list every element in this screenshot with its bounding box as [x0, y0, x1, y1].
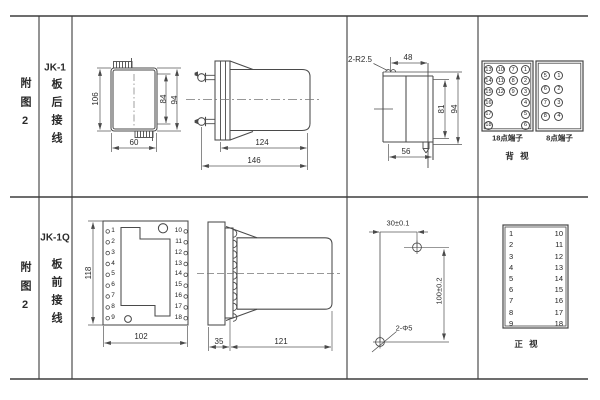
- flange: [215, 61, 230, 140]
- terminal-number: 10: [167, 226, 182, 237]
- terminal-number: 12: [167, 248, 182, 259]
- jk1-top-view-drawing: [374, 57, 463, 168]
- case-body: [230, 70, 310, 131]
- terminal-number: 15: [484, 87, 493, 96]
- jk1q-right-terminal-numbers: 101112131415161718: [167, 226, 182, 324]
- front-view-left-terminal-numbers: 123456789: [509, 228, 523, 329]
- terminal-number: 1: [509, 228, 523, 239]
- terminal-number: 7: [509, 295, 523, 306]
- terminal-number: 4: [554, 112, 563, 121]
- terminal-number: 6: [509, 284, 523, 295]
- drawing-linework: [0, 0, 600, 400]
- terminal-number: 12: [541, 251, 563, 262]
- terminal-number: 8: [509, 76, 518, 85]
- terminal-block-18-label: 18点端子: [492, 134, 523, 142]
- terminal-block-18: 131071141182151293164175186: [482, 64, 531, 130]
- drill-holes-note: 2-Φ5: [396, 324, 413, 332]
- terminal-number: 12: [496, 87, 505, 96]
- terminal-number: 17: [167, 302, 182, 313]
- jk1-side-case-depth-dim: 124: [255, 139, 268, 147]
- terminal-number: 4: [509, 262, 523, 273]
- jk1-side-total-depth-dim: 146: [247, 157, 260, 165]
- jk1q-front-height-dim: 118: [85, 266, 93, 279]
- model-label-jk1: JK-1: [44, 63, 66, 74]
- terminal-number: 8: [509, 307, 523, 318]
- terminal-number: 18: [484, 121, 493, 130]
- jk1-front-inner-height-dim: 84: [160, 95, 168, 104]
- terminal-number: 3: [554, 98, 563, 107]
- jk1q-side-case-depth-dim: 121: [274, 338, 287, 346]
- jk1-top-width-dim: 48: [404, 54, 413, 62]
- terminal-number: 11: [496, 76, 505, 85]
- terminal-number: 9: [111, 313, 123, 324]
- terminal-number: 5: [509, 273, 523, 284]
- terminal-number: 10: [496, 65, 505, 74]
- mounting-hole-bottom: [125, 316, 132, 323]
- front-view-caption: 正 视: [514, 340, 539, 349]
- drawing-sheet: 附图2 JK-1 板后接线 附图2 JK-1Q 板前接线 106 84 94 6…: [0, 0, 600, 400]
- terminal-number: 11: [167, 237, 182, 248]
- wiring-label-jk1q: 板前接线: [50, 258, 61, 330]
- terminal-bumps: [233, 230, 237, 322]
- terminal-number: 2: [521, 76, 530, 85]
- terminal-number: 9: [509, 318, 523, 329]
- jk1-top-bottom-width-dim: 56: [402, 148, 411, 156]
- jk1-top-tab-radius-note: 2-R2.5: [348, 56, 372, 64]
- model-label-jk1q: JK-1Q: [40, 233, 69, 244]
- jk1-top-inner-height-dim: 81: [438, 104, 446, 113]
- terminal-number: 3: [111, 248, 123, 259]
- terminal-number: 16: [484, 98, 493, 107]
- terminal-number: 5: [111, 269, 123, 280]
- terminal-number: 2: [111, 237, 123, 248]
- jk1q-side-panel-depth-dim: 35: [215, 338, 224, 346]
- terminal-number: 1: [111, 226, 123, 237]
- terminal-number: 18: [541, 318, 563, 329]
- terminal-number: 4: [111, 259, 123, 270]
- terminal-number: 5: [541, 71, 550, 80]
- terminal-number: 1: [521, 65, 530, 74]
- front-view-right-terminal-numbers: 101112131415161718: [541, 228, 563, 329]
- terminal-number: 16: [167, 291, 182, 302]
- terminal-number: 2: [554, 85, 563, 94]
- figure-label-row2: 附图2: [19, 261, 30, 319]
- terminal-number: 13: [167, 259, 182, 270]
- jk1-front-width-dim: 60: [130, 139, 139, 147]
- extension-lines: [97, 68, 181, 152]
- jk1-top-outer-height-dim: 94: [451, 104, 459, 113]
- jk1q-front-width-dim: 102: [134, 333, 147, 341]
- terminal-number: 16: [541, 295, 563, 306]
- terminal-number: 13: [484, 65, 493, 74]
- figure-label-row1: 附图2: [19, 77, 30, 135]
- mounting-screw-bottom: [195, 117, 215, 126]
- rear-view-caption: 背 视: [505, 152, 530, 161]
- chamfers: [230, 61, 253, 140]
- terminal-number: 5: [521, 110, 530, 119]
- dimension-lines: [390, 63, 459, 157]
- drill-hole-spacing-x-dim: 30±0.1: [387, 219, 410, 227]
- terminal-number: 8: [541, 112, 550, 121]
- terminal-block-8: 51627384: [539, 69, 566, 123]
- terminal-number: 15: [167, 280, 182, 291]
- leader-line: [374, 64, 388, 71]
- terminal-number: 15: [541, 284, 563, 295]
- window-cutout: [121, 228, 170, 317]
- terminal-number: 17: [484, 110, 493, 119]
- terminal-number: 4: [521, 98, 530, 107]
- terminal-number: 9: [509, 87, 518, 96]
- terminal-number: 3: [509, 251, 523, 262]
- terminal-number: 6: [111, 280, 123, 291]
- terminal-block-8-label: 8点端子: [546, 134, 573, 142]
- terminal-number: 17: [541, 307, 563, 318]
- terminal-strip: [225, 228, 233, 318]
- jk1-front-outer-height-dim: 94: [171, 96, 179, 105]
- mounting-screw-top: [195, 71, 215, 82]
- terminal-number: 14: [541, 273, 563, 284]
- extension-lines: [209, 311, 333, 351]
- terminal-number: 7: [509, 65, 518, 74]
- terminal-number: 18: [167, 313, 182, 324]
- terminal-number: 14: [484, 76, 493, 85]
- terminal-number: 13: [541, 262, 563, 273]
- terminal-number: 2: [509, 239, 523, 250]
- wiring-label-jk1: 板后接线: [50, 78, 61, 150]
- terminal-number: 1: [554, 71, 563, 80]
- jk1-front-view-drawing: [97, 58, 181, 152]
- terminal-number: 7: [541, 98, 550, 107]
- screw-terminal-top: [114, 58, 133, 68]
- terminal-number: 8: [111, 302, 123, 313]
- terminal-number: 14: [167, 269, 182, 280]
- terminal-number: 11: [541, 239, 563, 250]
- jk1-side-view-drawing: [186, 61, 321, 170]
- terminal-number: 10: [541, 228, 563, 239]
- terminal-number: 6: [521, 121, 530, 130]
- terminal-number: 3: [521, 87, 530, 96]
- jk1-front-height-dim: 106: [92, 92, 100, 105]
- jk1q-side-view-drawing: [197, 222, 340, 351]
- terminal-number: 7: [111, 291, 123, 302]
- jk1q-left-terminal-numbers: 123456789: [111, 226, 123, 324]
- drill-hole-spacing-y-dim: 100±0.2: [435, 277, 443, 304]
- terminal-number: 6: [541, 85, 550, 94]
